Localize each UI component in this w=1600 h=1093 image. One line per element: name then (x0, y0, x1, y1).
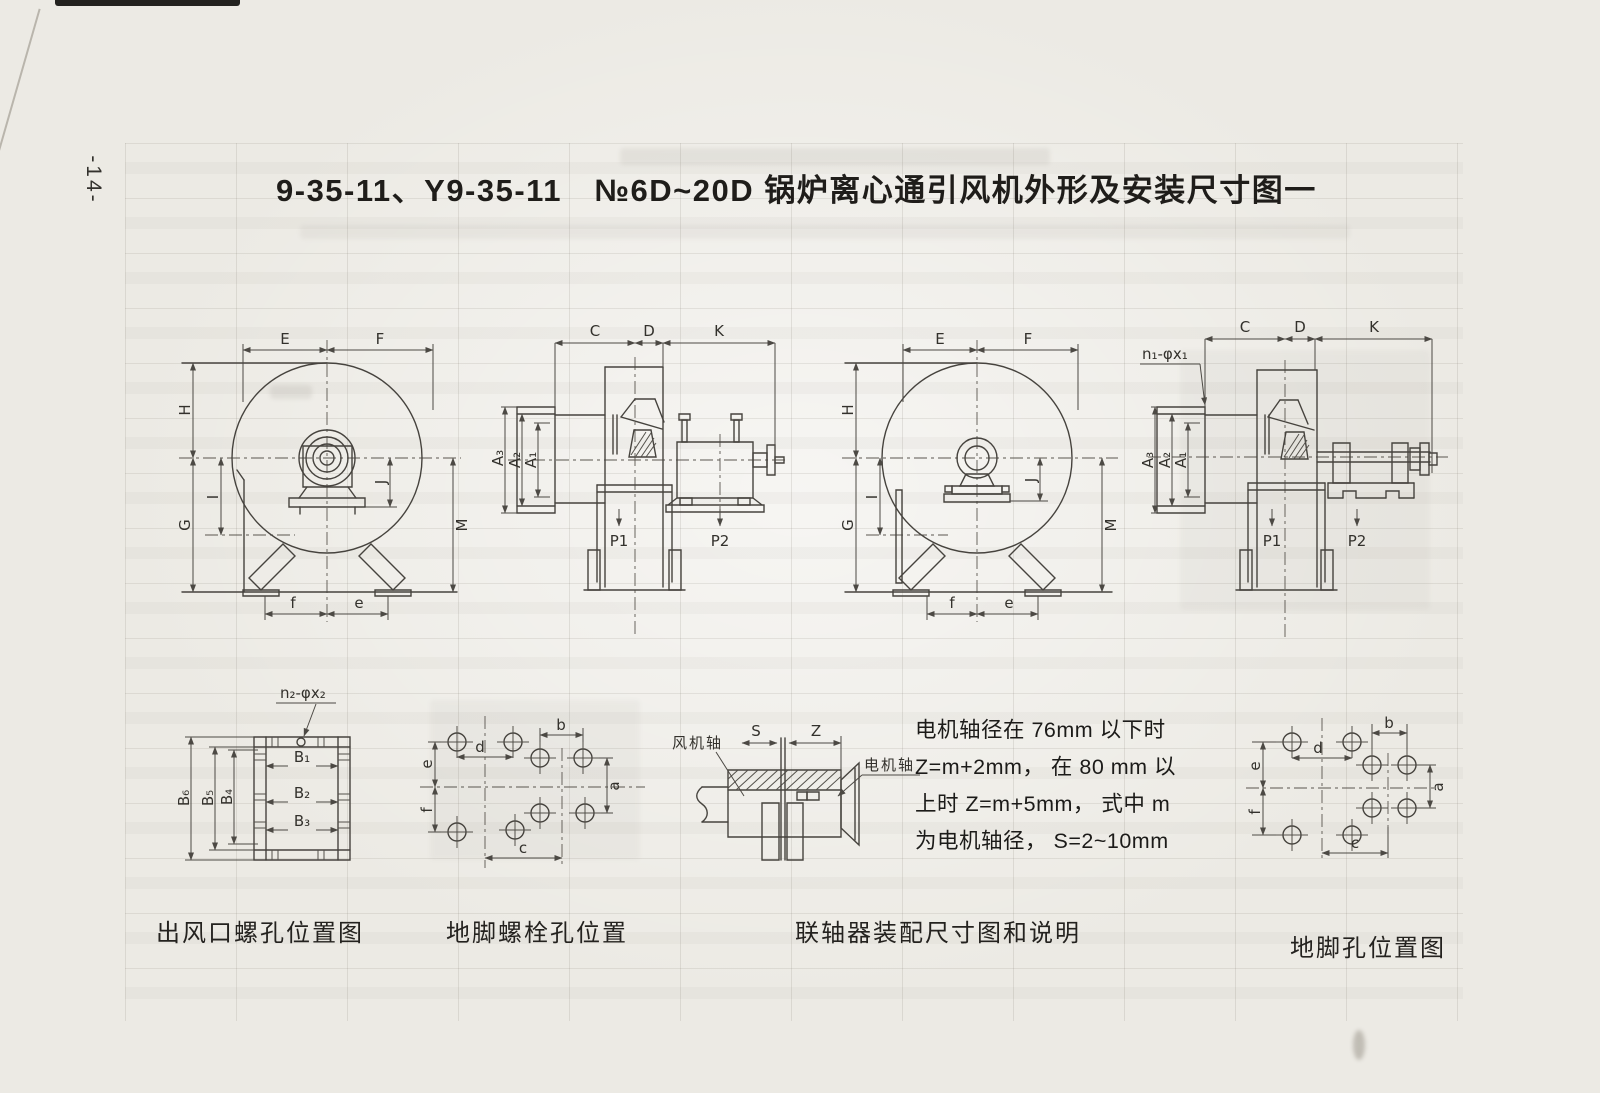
dim-label-P2: P2 (711, 532, 730, 550)
dim-label-J: J (372, 480, 390, 485)
fan-casing (1257, 370, 1317, 587)
dim-label-K: K (1369, 318, 1380, 336)
dimension-lines (856, 344, 1102, 620)
shaft-and-bearings (1317, 443, 1437, 498)
dim-label-Z: Z (811, 722, 821, 740)
dim-label-B5: B₅ (199, 790, 217, 806)
dim-label-P1: P1 (610, 532, 629, 550)
centerlines (1246, 718, 1438, 862)
panel-section-view-left: C D K A₃ A₂ A₁ P1 P2 (488, 302, 828, 647)
dim-label-C: C (1240, 318, 1250, 336)
dim-label-F: F (376, 330, 385, 348)
dim-label-G: G (839, 519, 857, 531)
dim-label-a: a (605, 781, 623, 790)
dim-label-b: b (1384, 714, 1394, 732)
dim-label-G: G (176, 519, 194, 531)
panel-foundation-bolt-layout: e f d b a c (408, 688, 653, 883)
dim-label-B2: B₂ (294, 784, 310, 802)
dim-label-e: e (1246, 761, 1264, 770)
fan-casing (605, 367, 664, 587)
impeller-hub (1281, 432, 1309, 459)
dim-label-A1: A₁ (1172, 452, 1190, 468)
impeller-hub (629, 430, 656, 457)
dim-label-I: I (863, 495, 881, 499)
note-line-4: 为电机轴径， S=2~10mm (915, 823, 1183, 860)
page-title: 9-35-11、Y9-35-11 №6D~20D 锅炉离心通引风机外形及安装尺寸… (276, 165, 1317, 210)
dim-label-I: I (204, 495, 222, 499)
dim-label-D: D (643, 322, 655, 340)
dim-label-P2: P2 (1348, 532, 1367, 550)
dim-label-J: J (1022, 478, 1040, 483)
centerlines (842, 340, 1118, 622)
panel-section-view-right: n₁-φx₁ C D K A₃ A₂ A₁ P1 P2 (1128, 302, 1478, 647)
panel-outlet-flange: n₂-φx₂ B₁ B₂ B₃ B₆ B₅ B₄ (168, 668, 423, 903)
outlet-holes-label: n₂-φx₂ (280, 684, 326, 702)
dim-label-e: e (1004, 594, 1013, 612)
note-line-2: Z=m+2mm， 在 80 mm 以 (915, 749, 1183, 786)
scanned-handbook-page: { "page": { "number": "-14-", "title": "… (0, 0, 1600, 1093)
pedestal (1236, 483, 1337, 590)
motor-shaft-label: 电机轴 (864, 756, 915, 774)
pedestal (584, 485, 685, 590)
panel-fan-side-view-left: E F H I G J M f e (165, 302, 515, 647)
dimension-lines (193, 344, 453, 620)
dim-label-B1: B₁ (294, 748, 310, 766)
dim-label-A3: A₃ (489, 450, 507, 466)
coupling-body (697, 738, 859, 860)
panel-foundation-hole-layout: e f d b a c (1228, 678, 1473, 883)
dim-label-M: M (453, 519, 471, 532)
dim-label-B4: B₄ (218, 789, 236, 805)
dim-label-f: f (949, 594, 955, 612)
panel-coupling-assembly: S Z 风机轴 电机轴 (658, 688, 923, 893)
dim-label-B6: B₆ (175, 790, 193, 806)
motor (666, 414, 784, 512)
dim-label-M: M (1102, 519, 1120, 532)
dim-label-a: a (1429, 782, 1447, 791)
dim-label-S: S (751, 722, 761, 740)
dim-label-P1: P1 (1263, 532, 1282, 550)
dim-label-d: d (1313, 739, 1323, 757)
dim-label-c: c (1351, 834, 1359, 852)
note-line-1: 电机轴径在 76mm 以下时 (915, 712, 1183, 749)
dim-label-E: E (280, 330, 289, 348)
dim-label-A3: A₃ (1139, 452, 1157, 468)
bleedthrough-smudge (620, 148, 1050, 165)
dim-label-E: E (935, 330, 944, 348)
dim-label-B3: B₃ (294, 812, 310, 830)
scan-edge-artifact (55, 0, 240, 6)
bolt-holes (1276, 726, 1423, 851)
bleedthrough-smudge (300, 225, 1350, 239)
dim-label-H: H (839, 404, 857, 415)
dimension-lines (185, 703, 338, 860)
caption-foundation-hole: 地脚孔位置图 (1290, 928, 1446, 963)
dim-label-H: H (176, 404, 194, 415)
caption-foundation-bolt: 地脚螺栓孔位置 (446, 913, 628, 948)
coupling-note-text: 电机轴径在 76mm 以下时 Z=m+2mm， 在 80 mm 以 上时 Z=m… (915, 712, 1183, 860)
centerlines (420, 716, 645, 868)
dim-label-e: e (418, 759, 436, 768)
dim-label-d: d (475, 738, 485, 756)
scan-edge-artifact (0, 9, 41, 154)
dim-label-f: f (418, 807, 436, 813)
dim-label-C: C (590, 322, 600, 340)
note-line-3: 上时 Z=m+5mm， 式中 m (915, 786, 1183, 823)
dim-label-b: b (556, 716, 566, 734)
dim-label-D: D (1294, 318, 1306, 336)
page-number: -14- (81, 125, 105, 235)
caption-outlet-flange: 出风口螺孔位置图 (156, 913, 364, 948)
dim-label-A1: A₁ (522, 452, 540, 468)
fan-shaft-label: 风机轴 (672, 734, 723, 752)
scan-smudge-artifact (1353, 1030, 1365, 1060)
panel-fan-side-view-right: E F H I G J M f e (828, 302, 1178, 647)
dim-label-K: K (714, 322, 725, 340)
dim-label-F: F (1024, 330, 1033, 348)
dim-label-c: c (519, 839, 527, 857)
dim-label-f: f (1246, 809, 1264, 815)
dim-label-e: e (354, 594, 363, 612)
dim-label-f: f (290, 594, 296, 612)
caption-coupling: 联轴器装配尺寸图和说明 (795, 913, 1081, 948)
inlet-holes-label: n₁-φx₁ (1142, 345, 1188, 363)
